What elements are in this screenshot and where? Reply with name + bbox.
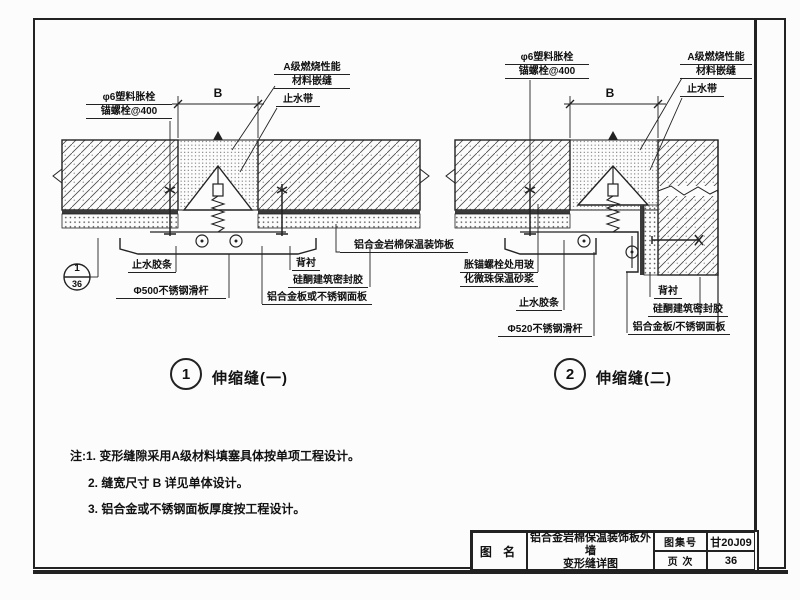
d2-label-rubber-strip: 止水胶条 (516, 298, 562, 311)
title-block-page-label: 页 次 (654, 551, 707, 570)
d2-label-mortar-line1: 胀锚螺栓处用玻 (460, 260, 538, 273)
d1-apex-mark (213, 131, 223, 140)
diagram2-linework (446, 78, 718, 389)
d2-label-waterstop: 止水带 (680, 84, 724, 97)
d1-label-classA-line2: 材料嵌缝 (274, 76, 350, 89)
note-line-2: 2. 缝宽尺寸 B 详见单体设计。 (88, 474, 249, 491)
d2-label-plastic-anchor-line1: φ6塑料胀栓 (505, 52, 589, 65)
d2-label-plastic-anchor-line2: 锚螺栓@400 (505, 66, 589, 79)
d2-caption-text: 伸缩缝(二) (596, 367, 672, 388)
d2-column (658, 140, 718, 275)
d1-label-plastic-anchor-line1: φ6塑料胀栓 (86, 92, 172, 105)
d1-caption-text: 伸缩缝(一) (212, 367, 288, 388)
d1-dim-b-label: B (208, 86, 228, 100)
diagram1-linework (53, 86, 429, 389)
d1-label-classA-line1: A级燃烧性能 (274, 62, 350, 75)
d2-bolt (608, 184, 618, 196)
d1-label-insulation-board: 铝合金岩棉保温装饰板 (340, 240, 468, 253)
title-block-title-line2: 变形缝详图 (563, 558, 618, 571)
d2-label-steel-rod: Φ520不锈钢滑杆 (498, 324, 592, 337)
d1-caption-number: 1 (178, 366, 194, 383)
title-block-title-line1: 铝合金岩棉保温装饰板外墙 (528, 532, 653, 558)
d1-label-cover-panel: 铝合金板或不锈钢面板 (262, 292, 372, 305)
d2-wall-left (455, 140, 570, 210)
d1-break-right (420, 169, 429, 183)
d2-break-left (446, 169, 455, 183)
drawing-sheet: φ6塑料胀栓 锚螺栓@400 B A级燃烧性能 材料嵌缝 止水带 止水胶条 Φ5… (0, 0, 800, 600)
title-block-title: 铝合金岩棉保温装饰板外墙 变形缝详图 (527, 532, 654, 570)
title-block-atlas-number: 甘20J09 (707, 532, 755, 551)
d2-apex-mark (608, 131, 618, 140)
note-line-3: 3. 铝合金或不锈钢面板厚度按工程设计。 (88, 500, 305, 517)
d2-label-classA-line1: A级燃烧性能 (680, 52, 752, 65)
d1-wall-left (62, 140, 178, 210)
d1-break-left (53, 169, 62, 183)
d1-label-steel-rod: Φ500不锈钢滑杆 (116, 286, 226, 299)
d1-label-rubber-strip: 止水胶条 (128, 260, 176, 273)
d2-label-classA-line2: 材料嵌缝 (680, 66, 752, 79)
title-block-page-number: 36 (707, 551, 755, 570)
d2-label-backing: 背衬 (654, 286, 682, 299)
title-block: 图 名 铝合金岩棉保温装饰板外墙 变形缝详图 图集号 甘20J09 页 次 36 (470, 530, 759, 572)
d2-label-mortar-line2: 化微珠保温砂浆 (460, 274, 538, 287)
d1-callout-number: 1 (70, 263, 84, 274)
d2-label-cover-panel: 铝合金板/不锈钢面板 (628, 322, 730, 335)
d2-dim-b-label: B (600, 86, 620, 100)
d2-label-sealant: 硅酮建筑密封胶 (648, 304, 728, 317)
note-line-1: 注:1. 变形缝隙采用A级材料填塞具体按单项工程设计。 (70, 447, 360, 464)
title-block-name-label: 图 名 (472, 532, 527, 570)
d1-bolt (213, 184, 223, 196)
d1-label-waterstop: 止水带 (276, 94, 320, 107)
d1-callout-page: 36 (69, 279, 85, 289)
d1-label-sealant: 硅酮建筑密封胶 (288, 275, 368, 288)
d1-label-plastic-anchor-line2: 锚螺栓@400 (86, 106, 172, 119)
d1-label-backing: 背衬 (292, 258, 320, 271)
d1-cover-assembly (120, 232, 316, 254)
title-block-atlas-label: 图集号 (654, 532, 707, 551)
d2-caption-number: 2 (562, 366, 578, 383)
